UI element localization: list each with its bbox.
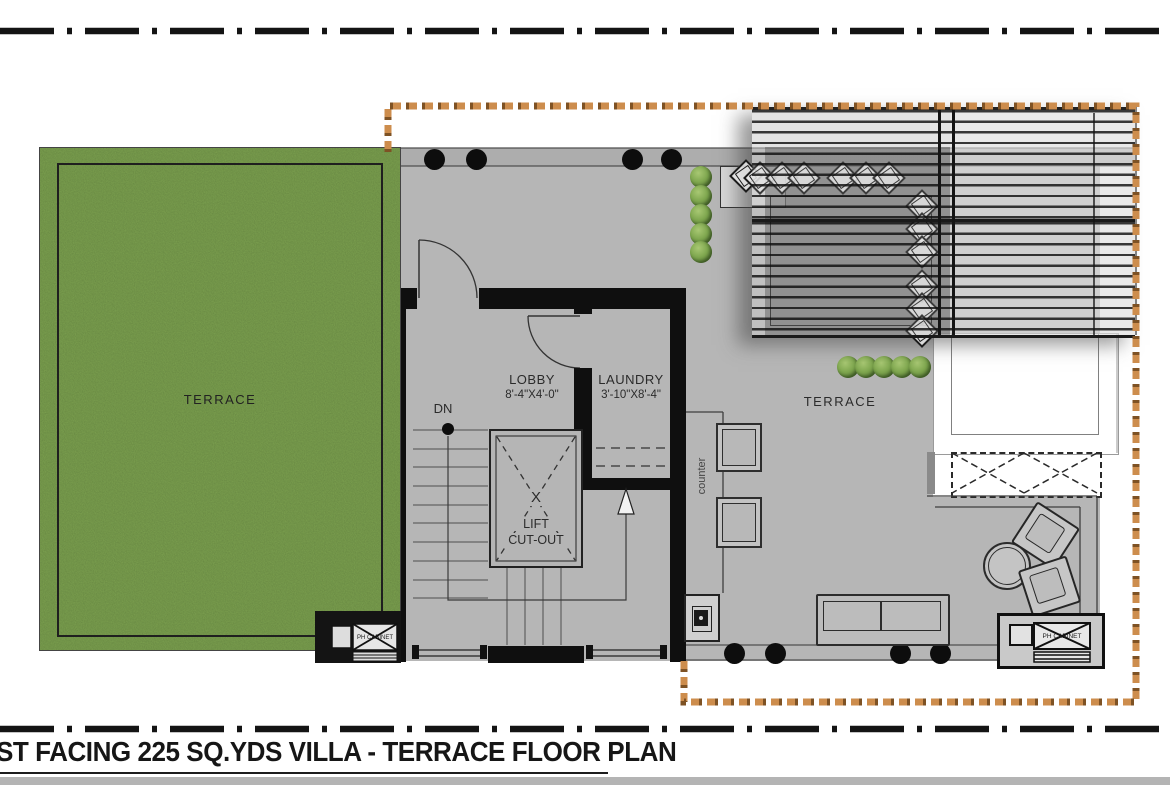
column-dot: [424, 149, 445, 170]
column-dot: [930, 643, 951, 664]
pergola: [752, 105, 1137, 335]
utility-cabinet-left-label: PH CABINET: [357, 635, 393, 641]
pergola-post: [1093, 113, 1095, 335]
shrub: [909, 356, 931, 378]
terrace-left-label: TERRACE: [120, 392, 320, 407]
shrub: [690, 241, 712, 263]
column-dot: [661, 149, 682, 170]
counter-label: counter: [696, 446, 708, 506]
column-dot: [765, 643, 786, 664]
column-dot: [724, 643, 745, 664]
terrace-right-label: TERRACE: [790, 394, 890, 409]
bottom-gray-strip: [0, 777, 1170, 785]
lift-cutout-box: X LIFT CUT-OUT: [489, 429, 583, 568]
page-title: ST FACING 225 SQ.YDS VILLA - TERRACE FLO…: [0, 736, 676, 768]
roof-cutout-inner-border: [951, 333, 1099, 435]
column-dot: [466, 149, 487, 170]
laundry-label: LAUNDRY: [593, 372, 669, 387]
sofa: [816, 594, 950, 646]
stairs-dn-dot: [442, 423, 454, 435]
wall-divider-top: [574, 288, 592, 314]
bar-stool: [716, 497, 762, 548]
utility-cabinet-right-label: PH CABINET: [1042, 633, 1081, 640]
stairs-dn-label: DN: [430, 401, 456, 416]
bar-stool: [716, 423, 762, 472]
grill-appliance: [684, 594, 720, 642]
pergola-post: [952, 105, 955, 335]
column-dot: [890, 643, 911, 664]
floor-plan-canvas: X LIFT CUT-OUT LOBBY 8'-4"X4'-0" LAUNDRY…: [0, 0, 1170, 785]
title-underline: [0, 772, 608, 774]
utility-cabinet-left: PH CABINET: [315, 611, 401, 663]
column-dot: [622, 149, 643, 170]
void-dashed-box: [951, 452, 1102, 498]
grass-terrace: TERRACE: [40, 148, 400, 650]
lift-label-2: CUT-OUT: [499, 533, 573, 547]
laundry-dimensions: 3'-10"X8'-4": [585, 389, 677, 401]
lobby-dimensions: 8'-4"X4'-0": [486, 389, 578, 401]
lift-label-1: LIFT: [511, 517, 561, 531]
pergola-slats-lower: [752, 219, 1135, 338]
lobby-label: LOBBY: [492, 372, 572, 387]
pergola-slats-upper: [752, 107, 1135, 222]
lift-cross-mark: X: [528, 489, 544, 506]
wall-stair-bottom: [488, 646, 584, 663]
pergola-post: [938, 105, 941, 335]
utility-cabinet-right: PH CABINET: [997, 613, 1105, 669]
wall-laundry-bottom: [582, 478, 686, 490]
